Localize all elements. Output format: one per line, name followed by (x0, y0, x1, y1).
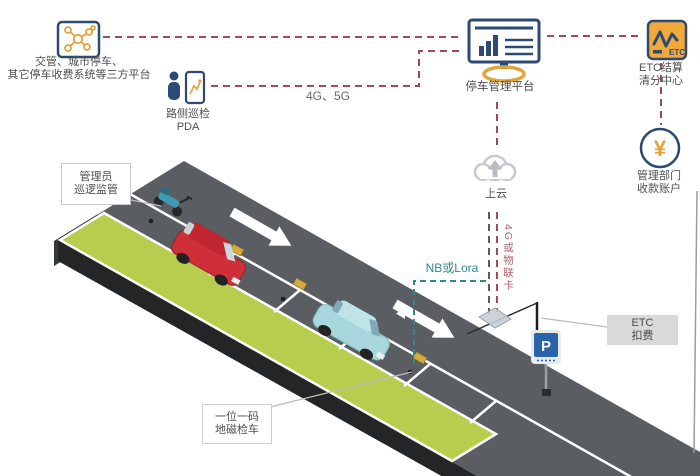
platform-label: 停车管理平台 (448, 81, 552, 94)
etc-fee-callout: ETC 扣费 (607, 315, 678, 345)
account-label: 管理部门 收款账户 (619, 170, 699, 196)
yuan-symbol: ¥ (654, 136, 667, 161)
link-iotcard-label: 4G或物联卡 (501, 224, 516, 319)
link-nblora-label: NB或Lora (406, 262, 498, 275)
page-edge-line (694, 191, 697, 453)
road-slab (54, 161, 700, 476)
etc-icon-text: ETC (669, 48, 685, 57)
one-code-callout: 一位一码 地磁检车 (202, 404, 272, 444)
cloud-icon (475, 156, 515, 180)
admin-patrol-callout: 管理员 巡逻监管 (61, 163, 131, 205)
smart-parking-diagram: P (0, 0, 700, 476)
platform-monitor-icon (467, 18, 543, 89)
third-party-label: 交管、城市停车、 其它停车收费系统等三方平台 (0, 56, 158, 82)
pda-inspector-icon (166, 70, 208, 111)
pda-label: 路侧巡检 PDA (156, 108, 220, 134)
parking-sign-letter: P (541, 338, 551, 355)
etc-settlement-icon: ETC (646, 19, 688, 66)
yuan-account-icon: ¥ (638, 126, 682, 175)
cloud-label: 上云 (470, 188, 522, 201)
etc-center-label: ETC结算 清分中心 (621, 62, 700, 88)
link-4g5g-label: 4G、5G (294, 90, 362, 103)
